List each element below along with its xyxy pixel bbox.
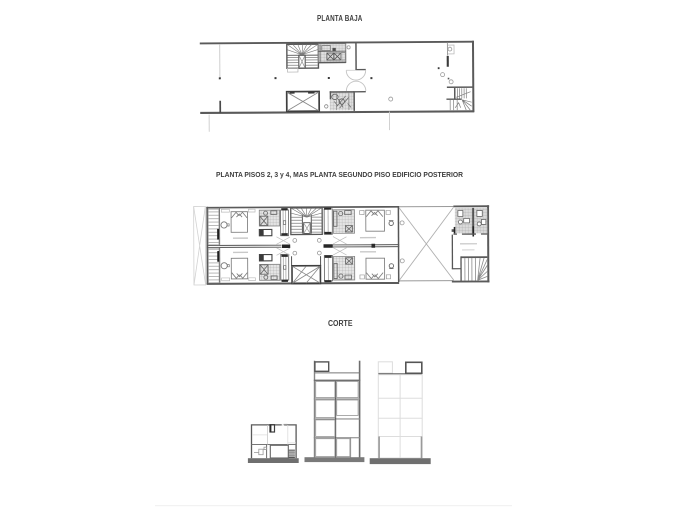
svg-text:CORTE: CORTE (328, 319, 353, 328)
svg-text:PLANTA PISOS 2, 3 y 4, MAS PLA: PLANTA PISOS 2, 3 y 4, MAS PLANTA SEGUND… (216, 170, 464, 179)
svg-text:PLANTA BAJA: PLANTA BAJA (317, 14, 363, 23)
